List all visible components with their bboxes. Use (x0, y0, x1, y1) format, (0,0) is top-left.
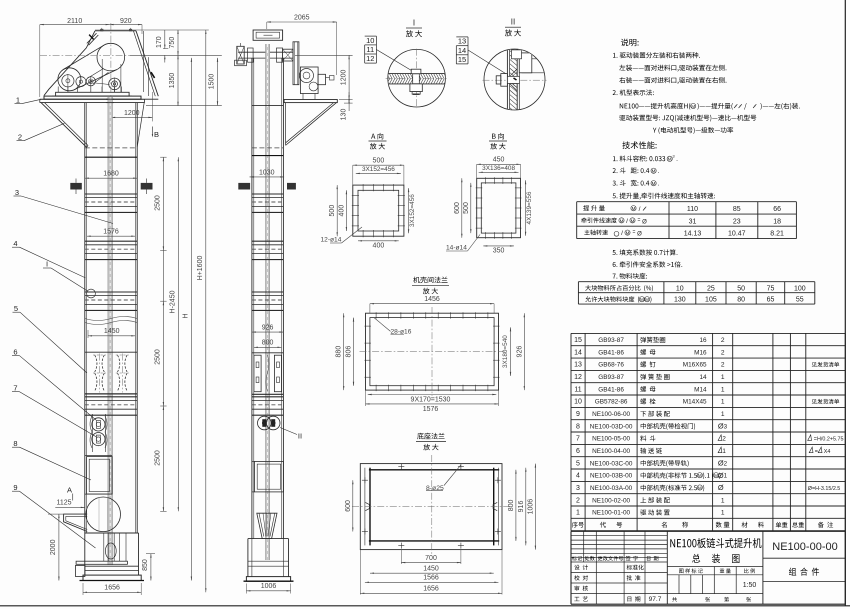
svg-text:31: 31 (689, 218, 697, 225)
svg-text:M: M (652, 169, 656, 174)
svg-text:NE100-03A-00: NE100-03A-00 (590, 485, 633, 492)
svg-text:M: M (668, 157, 672, 162)
svg-text:916: 916 (518, 501, 525, 513)
svg-text:4: 4 (576, 473, 580, 480)
svg-text:M16X65: M16X65 (683, 362, 707, 369)
svg-text:M14: M14 (694, 386, 707, 393)
svg-text:GB41-86: GB41-86 (598, 349, 624, 356)
svg-text:16: 16 (699, 337, 707, 344)
svg-text:NE100-06-00: NE100-06-00 (592, 411, 630, 418)
svg-text:100: 100 (794, 285, 806, 292)
svg-text:2110: 2110 (67, 18, 82, 25)
svg-text:1: 1 (16, 96, 20, 105)
svg-text:9: 9 (576, 411, 580, 418)
svg-text:500: 500 (329, 205, 336, 217)
svg-text:Ø: Ø (642, 220, 647, 226)
svg-text:NE100-01-00: NE100-01-00 (592, 510, 630, 517)
svg-text:2: 2 (721, 362, 725, 369)
svg-text:1456: 1456 (424, 296, 440, 303)
svg-text:12: 12 (366, 54, 374, 63)
svg-text:926: 926 (262, 325, 274, 332)
svg-text:1: 1 (721, 386, 725, 393)
svg-text:3: 3 (576, 485, 580, 492)
svg-text:I: I (413, 19, 415, 28)
svg-text:130: 130 (674, 297, 686, 304)
svg-text:M: M (652, 181, 656, 186)
svg-text:2000: 2000 (50, 539, 57, 555)
svg-text:4X139=556: 4X139=556 (526, 191, 533, 224)
svg-text:8: 8 (13, 439, 17, 448)
svg-text:1006: 1006 (527, 499, 534, 515)
svg-text:M: M (626, 231, 630, 236)
svg-text:/: / (626, 218, 628, 225)
svg-text:.: . (676, 156, 678, 163)
svg-text:806: 806 (346, 346, 353, 358)
svg-text:6: 6 (576, 448, 580, 455)
svg-text:400: 400 (338, 205, 345, 217)
svg-text:1500: 1500 (208, 74, 215, 90)
svg-text:7: 7 (576, 436, 580, 443)
svg-text:8.21: 8.21 (770, 231, 784, 238)
svg-text:2: 2 (722, 436, 726, 443)
svg-text:14: 14 (458, 46, 466, 55)
svg-text:1656: 1656 (104, 585, 120, 592)
svg-text:M16: M16 (694, 349, 707, 356)
svg-text:1006: 1006 (261, 583, 277, 590)
svg-text:NE100-03D-00: NE100-03D-00 (590, 423, 633, 430)
svg-text:=: = (638, 218, 641, 224)
svg-text:2: 2 (576, 497, 580, 504)
svg-text:=: = (815, 449, 818, 455)
svg-text:1566: 1566 (423, 575, 439, 582)
svg-text:2: 2 (721, 349, 725, 356)
svg-text:.: . (658, 168, 660, 175)
svg-text:1: 1 (721, 510, 725, 517)
svg-text:2: 2 (18, 133, 22, 142)
svg-text:1: 1 (721, 497, 725, 504)
svg-text:9X170=1530: 9X170=1530 (411, 396, 451, 403)
svg-text:3: 3 (724, 423, 728, 430)
svg-text:10: 10 (676, 285, 684, 292)
svg-text:926: 926 (516, 346, 523, 358)
svg-text:85: 85 (733, 206, 741, 213)
svg-text:/: / (621, 230, 623, 237)
svg-text:750: 750 (169, 37, 176, 49)
svg-text:23: 23 (733, 218, 741, 225)
svg-text:15: 15 (458, 55, 466, 64)
svg-text:GB93-87: GB93-87 (598, 374, 624, 381)
svg-text:NE100-02-00: NE100-02-00 (592, 497, 630, 504)
svg-text:NE100-00-00: NE100-00-00 (772, 541, 837, 553)
svg-text:1656: 1656 (423, 586, 439, 593)
svg-text:10: 10 (366, 36, 374, 45)
svg-text:1576: 1576 (423, 406, 439, 413)
svg-text:=: = (633, 230, 636, 236)
svg-text:14.13: 14.13 (684, 231, 702, 238)
svg-text:1350: 1350 (169, 73, 176, 89)
svg-text:10.47: 10.47 (728, 231, 746, 238)
svg-text:H: H (183, 313, 190, 318)
svg-text:7: 7 (13, 384, 17, 393)
svg-text:850: 850 (142, 559, 149, 571)
svg-text:700: 700 (425, 555, 437, 562)
svg-text:M14X45: M14X45 (683, 399, 707, 406)
svg-text:450: 450 (493, 157, 505, 164)
svg-text:2: 2 (721, 337, 725, 344)
svg-text:H+1600: H+1600 (197, 256, 204, 281)
svg-text:GB68-76: GB68-76 (598, 362, 624, 369)
svg-text:400: 400 (373, 242, 385, 249)
svg-text:13: 13 (574, 362, 582, 369)
svg-text:NE100-03B-00: NE100-03B-00 (590, 473, 633, 480)
svg-text:920: 920 (120, 18, 132, 25)
svg-text:M: M (691, 104, 695, 109)
svg-text:1: 1 (721, 399, 725, 406)
svg-text:H-2450: H-2450 (170, 290, 177, 313)
svg-text:2065: 2065 (294, 14, 310, 21)
svg-text:75: 75 (767, 285, 775, 292)
svg-text:B: B (154, 130, 159, 139)
svg-text:11: 11 (366, 45, 374, 54)
svg-text:M: M (631, 218, 635, 223)
svg-text:NE100-03C-00: NE100-03C-00 (590, 460, 633, 467)
svg-text:Ø: Ø (637, 232, 642, 238)
svg-text:110: 110 (687, 206, 698, 213)
svg-text:1200: 1200 (340, 70, 347, 86)
svg-text:GB5782-86: GB5782-86 (595, 399, 628, 406)
svg-text:1680: 1680 (103, 170, 119, 177)
svg-text:M: M (640, 297, 644, 302)
svg-text:1:50: 1:50 (743, 582, 757, 589)
svg-text:80: 80 (737, 297, 745, 304)
svg-text:3: 3 (15, 188, 19, 197)
svg-text:/: / (639, 206, 641, 213)
svg-text:14: 14 (574, 349, 582, 356)
svg-text:M: M (620, 218, 624, 223)
svg-text:14: 14 (699, 374, 707, 381)
svg-text:55: 55 (796, 297, 804, 304)
svg-text:GB41-86: GB41-86 (598, 386, 624, 393)
svg-text:12-ø14: 12-ø14 (321, 236, 342, 243)
svg-text:1: 1 (724, 473, 728, 480)
svg-text:3X136=408: 3X136=408 (482, 165, 515, 172)
svg-text:GB93-87: GB93-87 (598, 337, 624, 344)
svg-text:Ø=H-3.15/2.5: Ø=H-3.15/2.5 (808, 486, 841, 492)
svg-text:M: M (698, 485, 702, 490)
svg-text:11: 11 (574, 386, 581, 393)
svg-text:66: 66 (773, 206, 781, 213)
svg-text:880: 880 (336, 346, 343, 358)
svg-text:1: 1 (721, 374, 725, 381)
svg-text:A: A (67, 486, 72, 495)
svg-text:NE100-05-00: NE100-05-00 (592, 436, 630, 443)
svg-text:14-ø14: 14-ø14 (446, 244, 467, 251)
svg-text:130: 130 (340, 109, 347, 121)
svg-text:600: 600 (454, 202, 461, 214)
svg-text:2500: 2500 (155, 450, 162, 466)
svg-text:1: 1 (721, 411, 725, 418)
svg-text:M: M (645, 297, 649, 302)
svg-text:18: 18 (773, 218, 781, 225)
svg-text:M: M (632, 206, 636, 211)
svg-text:1: 1 (576, 510, 580, 517)
svg-text:II: II (298, 432, 302, 441)
svg-text:1030: 1030 (259, 169, 275, 176)
svg-text:97.7: 97.7 (649, 596, 662, 603)
svg-text:12: 12 (574, 374, 582, 381)
svg-text:65: 65 (767, 297, 775, 304)
svg-text:10: 10 (574, 399, 582, 406)
svg-text:50: 50 (737, 285, 745, 292)
svg-text:500: 500 (373, 158, 385, 165)
svg-text:M: M (698, 473, 702, 478)
svg-text:=H/0.2+5.75: =H/0.2+5.75 (814, 437, 844, 443)
svg-text:350: 350 (493, 248, 505, 255)
svg-text:500: 500 (463, 202, 470, 214)
svg-text:105: 105 (705, 297, 717, 304)
svg-text:3X152=456: 3X152=456 (409, 194, 416, 227)
svg-text:X4: X4 (824, 449, 831, 455)
svg-text:NE100-04-00: NE100-04-00 (592, 448, 630, 455)
svg-text:2500: 2500 (155, 195, 162, 211)
svg-text:4: 4 (13, 239, 17, 248)
svg-text:1: 1 (722, 448, 726, 455)
svg-text:1125: 1125 (56, 500, 71, 507)
svg-text:9: 9 (13, 483, 17, 492)
svg-text:800: 800 (262, 340, 274, 347)
svg-text:I: I (46, 260, 48, 269)
svg-text:3: 3 (672, 155, 674, 159)
svg-text:5: 5 (14, 304, 18, 313)
svg-text:170: 170 (156, 36, 163, 48)
svg-text:2: 2 (724, 460, 728, 467)
svg-text:5: 5 (576, 460, 580, 467)
svg-text:3X152=456: 3X152=456 (362, 166, 395, 173)
svg-text:600: 600 (345, 500, 352, 512)
svg-text:Ø: Ø (718, 483, 724, 492)
svg-text:13: 13 (458, 37, 466, 46)
svg-text:II: II (511, 18, 515, 27)
svg-text:3X180=540: 3X180=540 (502, 335, 509, 368)
svg-text:15: 15 (574, 337, 582, 344)
svg-text:1450: 1450 (423, 566, 439, 573)
svg-text:8: 8 (576, 423, 580, 430)
svg-text:.: . (658, 181, 660, 188)
svg-text:1450: 1450 (104, 328, 120, 335)
svg-text:25: 25 (707, 285, 715, 292)
svg-text:1576: 1576 (103, 229, 119, 236)
svg-text:2500: 2500 (155, 349, 162, 365)
svg-text:800: 800 (508, 499, 515, 511)
svg-text:6: 6 (13, 348, 17, 357)
